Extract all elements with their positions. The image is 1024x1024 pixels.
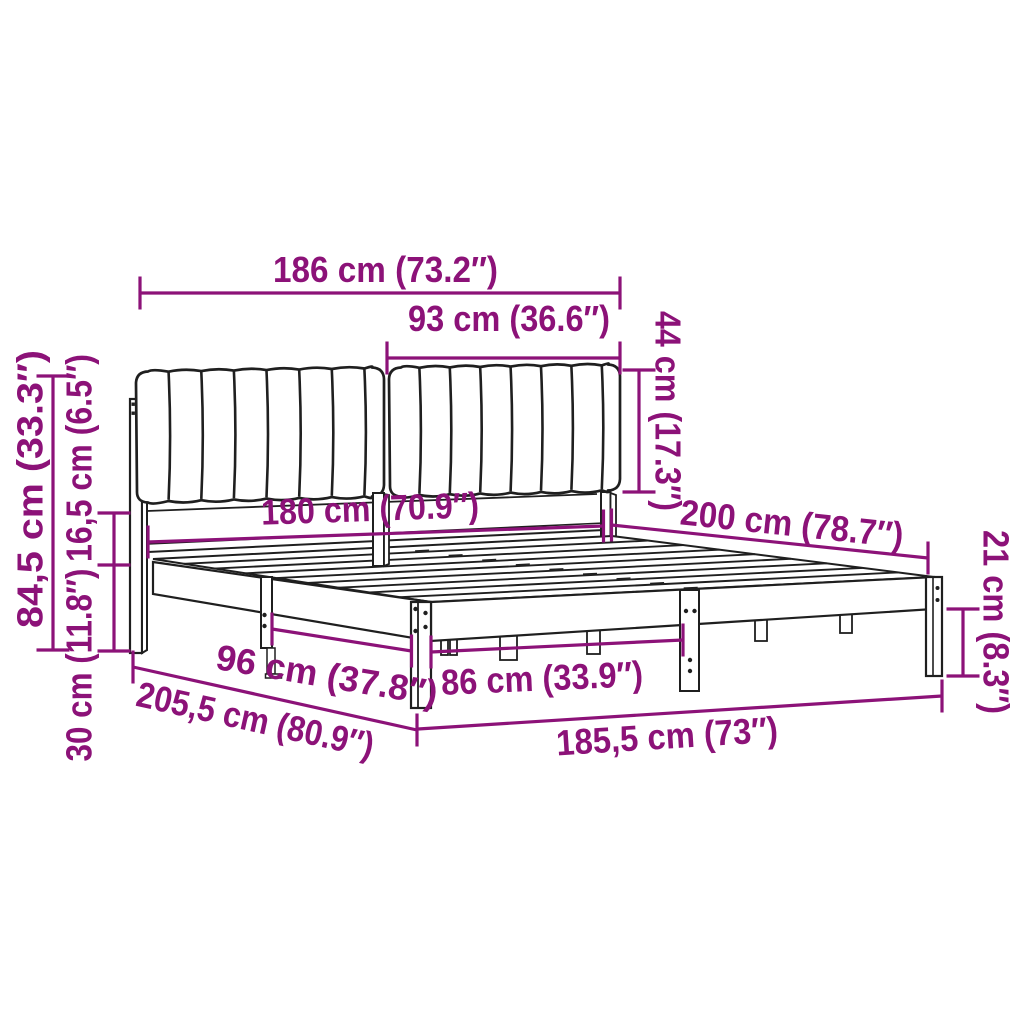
svg-text:186 cm (73.2″): 186 cm (73.2″) <box>273 249 498 290</box>
svg-text:84,5 cm (33.3″): 84,5 cm (33.3″) <box>10 350 51 628</box>
svg-text:21 cm (8.3″): 21 cm (8.3″) <box>976 530 1017 714</box>
svg-text:16,5 cm (6.5″): 16,5 cm (6.5″) <box>59 354 100 562</box>
svg-text:30 cm (11.8″): 30 cm (11.8″) <box>59 569 100 762</box>
svg-text:44 cm (17.3″): 44 cm (17.3″) <box>648 311 689 511</box>
svg-text:93 cm (36.6″): 93 cm (36.6″) <box>408 298 610 339</box>
svg-text:180 cm (70.9″): 180 cm (70.9″) <box>260 484 479 533</box>
